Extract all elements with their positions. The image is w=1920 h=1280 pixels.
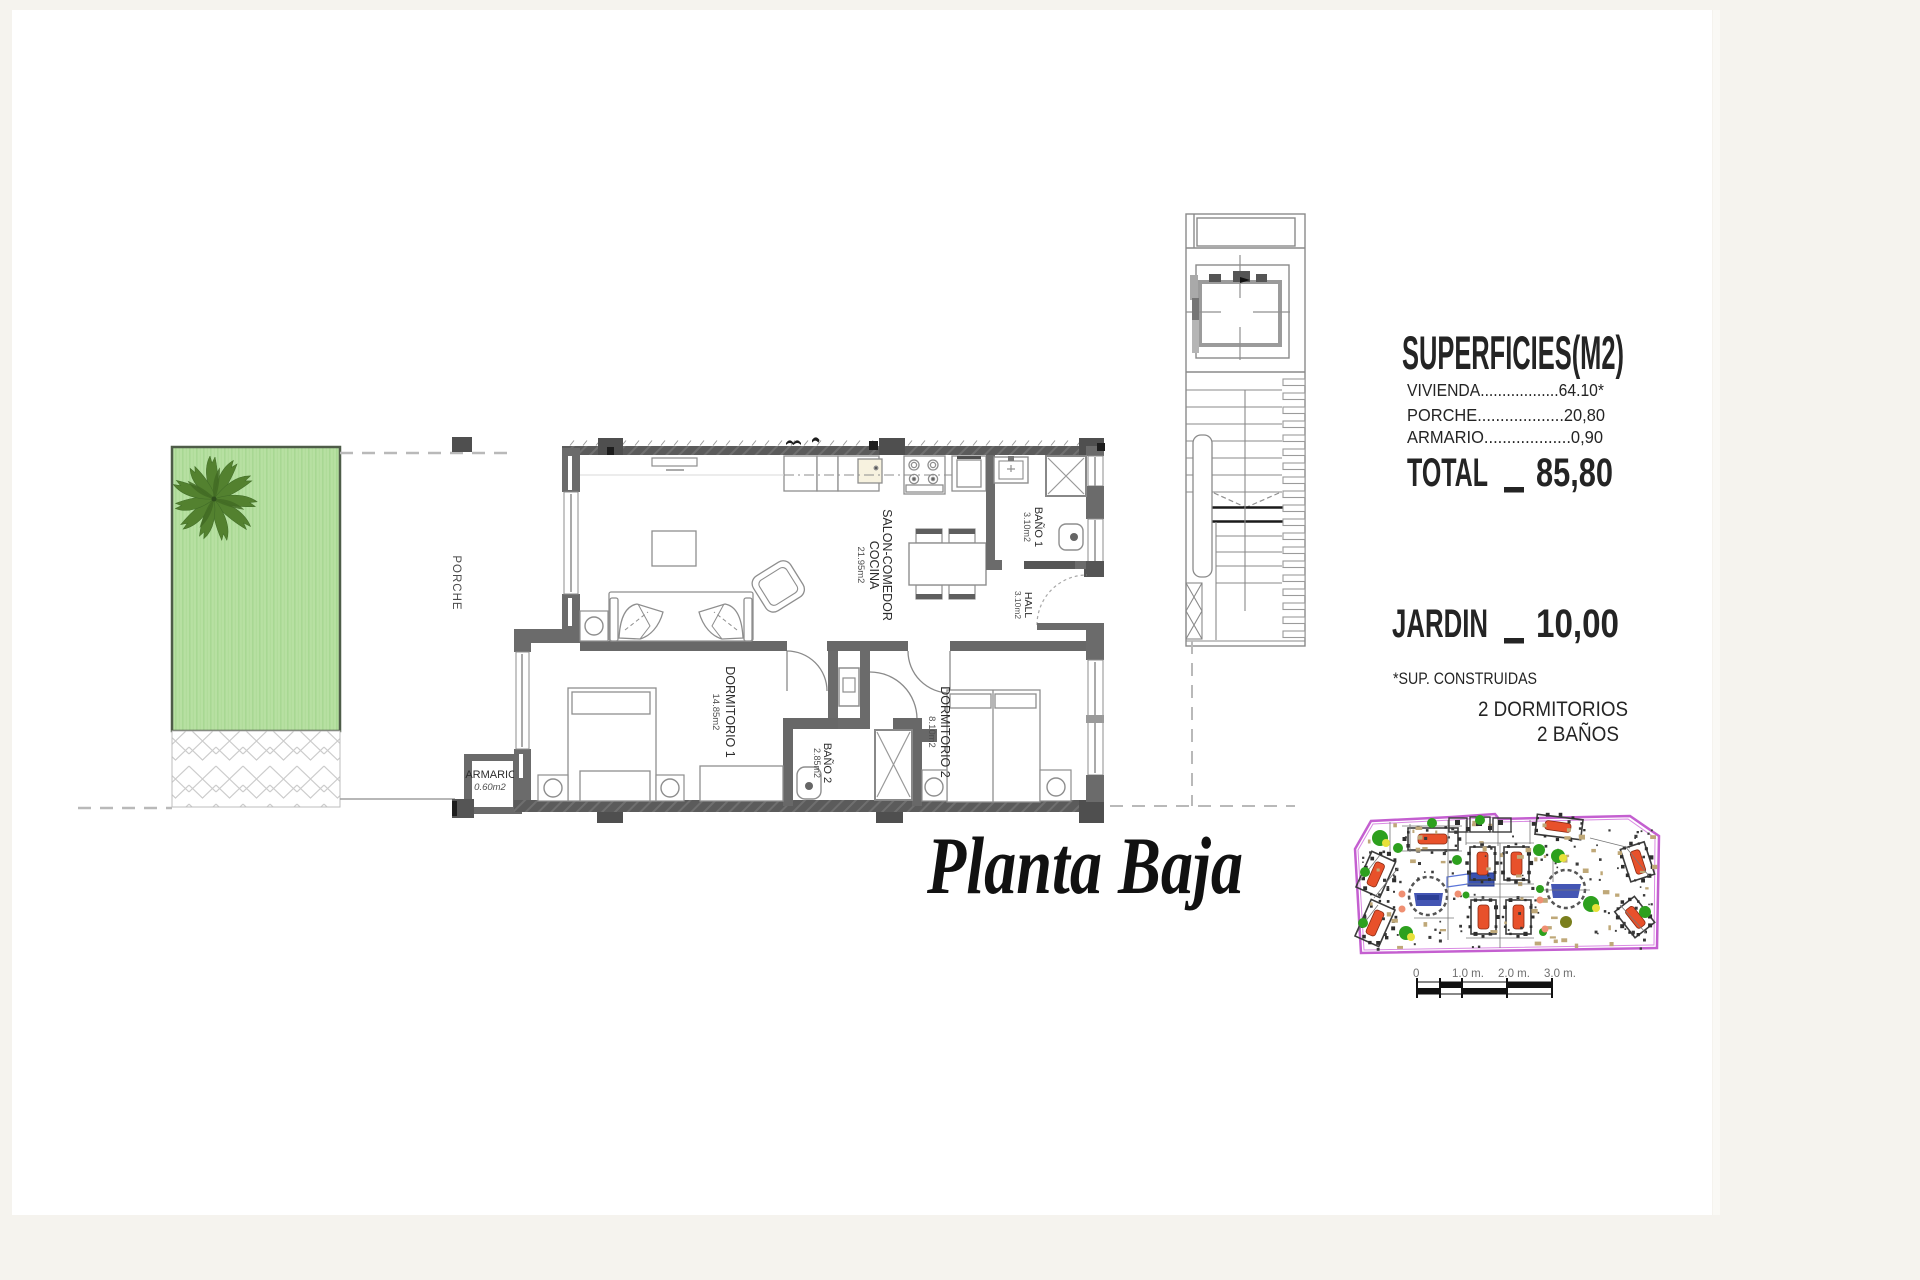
svg-text:COCINA: COCINA xyxy=(867,541,881,590)
svg-text:ARMARIO...................0,90: ARMARIO...................0,90 xyxy=(1407,427,1603,447)
svg-text:3.10m2: 3.10m2 xyxy=(1013,591,1023,620)
svg-text:2 BAÑOS: 2 BAÑOS xyxy=(1537,722,1619,746)
svg-text:3.0 m.: 3.0 m. xyxy=(1544,968,1576,980)
svg-text:Planta Baja: Planta Baja xyxy=(926,820,1243,911)
svg-text:85,80: 85,80 xyxy=(1536,451,1613,495)
svg-text:3.10m2: 3.10m2 xyxy=(1022,512,1032,542)
svg-text:BAÑO 1: BAÑO 1 xyxy=(1032,507,1045,547)
svg-text:14.85m2: 14.85m2 xyxy=(710,694,721,731)
svg-text:8.10m2: 8.10m2 xyxy=(926,716,937,748)
svg-text:2.0 m.: 2.0 m. xyxy=(1498,968,1530,980)
svg-text:PORCHE: PORCHE xyxy=(450,555,462,610)
svg-text:DORMITORIO 2: DORMITORIO 2 xyxy=(938,686,952,777)
svg-text:10,00: 10,00 xyxy=(1536,602,1619,646)
svg-text:VIVIENDA..................64.1: VIVIENDA..................64.10* xyxy=(1407,380,1604,400)
svg-text:SALON-COMEDOR: SALON-COMEDOR xyxy=(880,509,894,621)
svg-text:JARDIN: JARDIN xyxy=(1392,602,1488,646)
svg-text:2 DORMITORIOS: 2 DORMITORIOS xyxy=(1478,698,1628,721)
svg-text:1.0 m.: 1.0 m. xyxy=(1452,968,1484,980)
svg-text:DORMITORIO 1: DORMITORIO 1 xyxy=(723,666,737,757)
svg-text:TOTAL: TOTAL xyxy=(1407,451,1488,495)
svg-text:0.60m2: 0.60m2 xyxy=(474,782,506,793)
svg-text:*SUP. CONSTRUIDAS: *SUP. CONSTRUIDAS xyxy=(1393,670,1537,688)
svg-text:PORCHE...................20,80: PORCHE...................20,80 xyxy=(1407,405,1605,425)
svg-text:21.95m2: 21.95m2 xyxy=(855,547,866,584)
svg-text:SUPERFICIES(M2): SUPERFICIES(M2) xyxy=(1402,326,1624,379)
svg-text:2.85m2: 2.85m2 xyxy=(812,748,822,778)
svg-text:ARMARIO: ARMARIO xyxy=(465,769,517,781)
